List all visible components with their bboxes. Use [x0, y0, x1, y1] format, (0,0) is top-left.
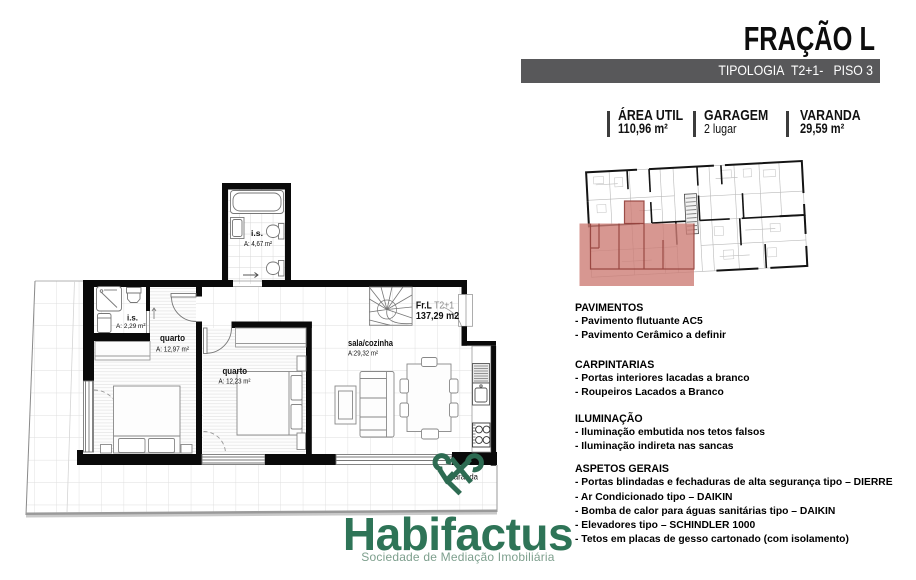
svg-text:quarto: quarto — [223, 366, 248, 376]
svg-text:quarto: quarto — [160, 333, 185, 343]
svg-text:i.s.: i.s. — [251, 228, 263, 238]
svg-text:A: 12,23 m²: A: 12,23 m² — [219, 377, 251, 386]
svg-text:i.s.: i.s. — [127, 314, 138, 323]
svg-text:A: 12,97 m²: A: 12,97 m² — [156, 345, 189, 354]
svg-text:A: 2,29 m²: A: 2,29 m² — [116, 323, 146, 330]
svg-text:sala/cozinha: sala/cozinha — [348, 338, 394, 348]
svg-text:A:29,32 m²: A:29,32 m² — [348, 349, 378, 358]
svg-text:A: 4,67 m²: A: 4,67 m² — [244, 239, 272, 248]
svg-text:137,29 m2: 137,29 m2 — [416, 310, 459, 322]
